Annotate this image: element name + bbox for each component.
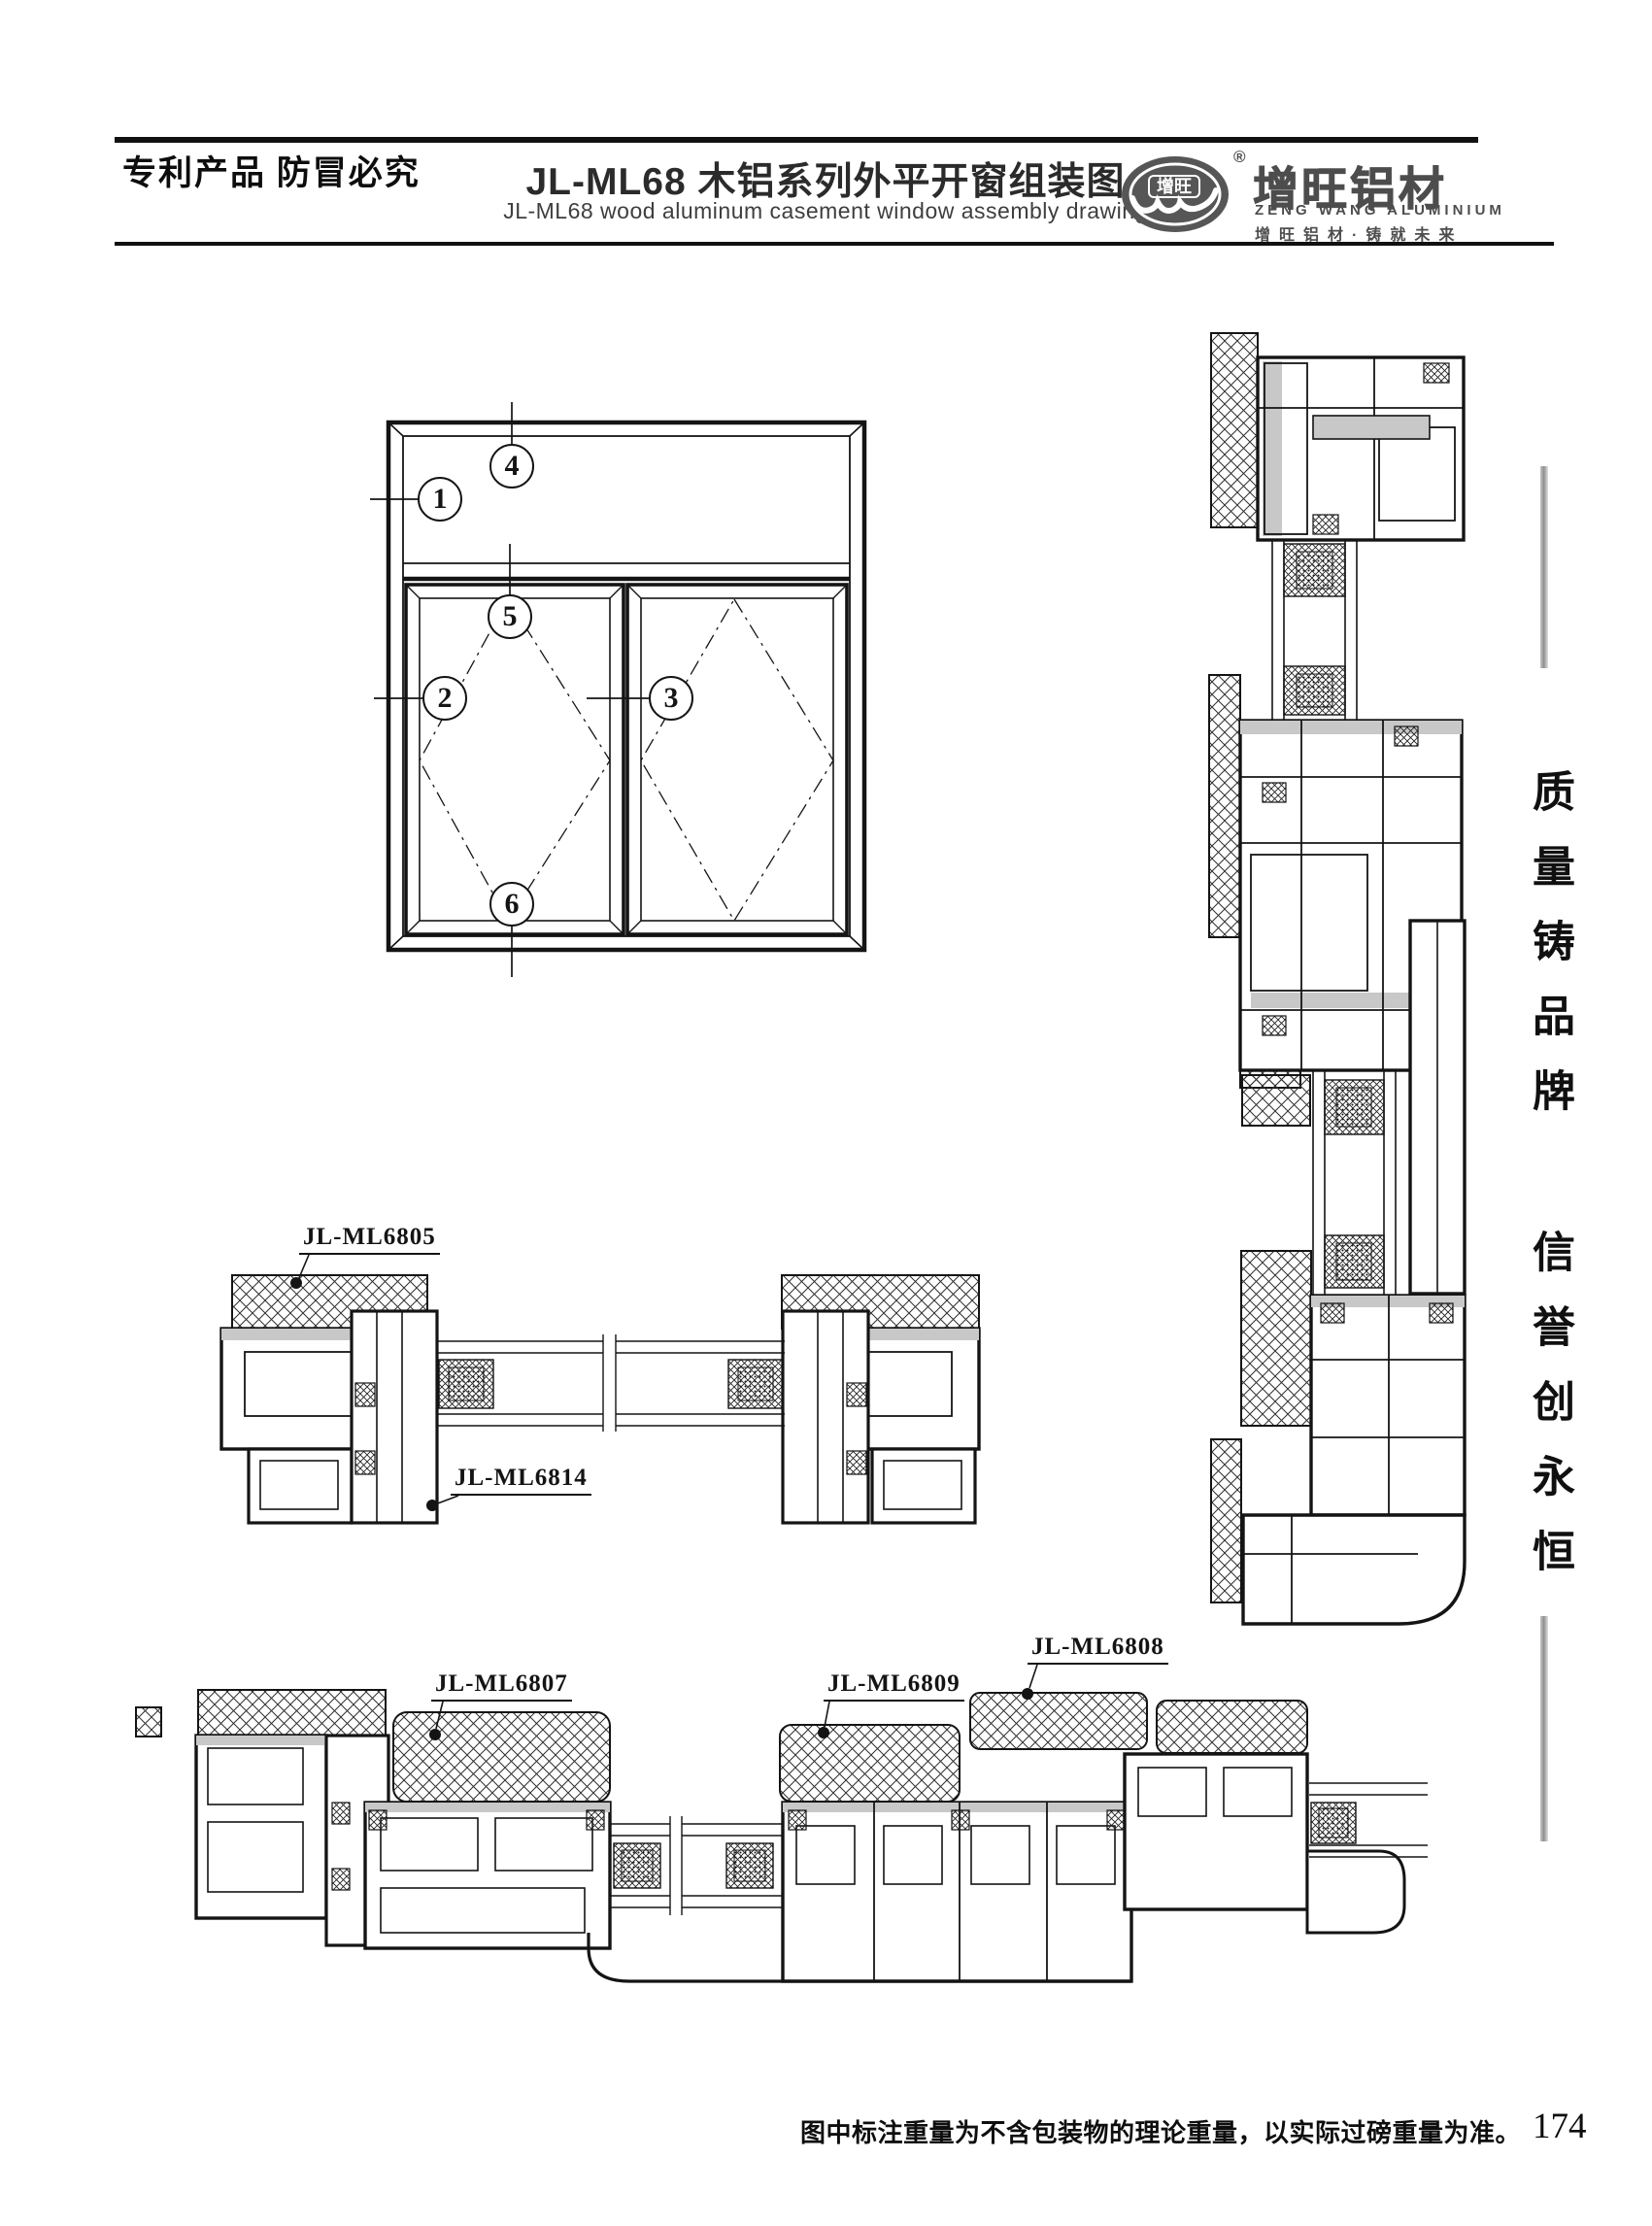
label-jl-ml6808: JL-ML6808 (1028, 1634, 1168, 1665)
sidebar-slogan-top: 质量铸品牌 (1518, 769, 1580, 1143)
callout-3: 3 (649, 676, 693, 721)
footer-note: 图中标注重量为不含包装物的理论重量，以实际过磅重量为准。 (647, 2113, 1521, 2149)
sidebar-divider-top (1540, 466, 1548, 668)
horizontal-section-bottom (136, 1665, 1428, 1981)
label-jl-ml6805: JL-ML6805 (299, 1224, 440, 1255)
page-number: 174 (1533, 2106, 1587, 2147)
label-jl-ml6814: JL-ML6814 (451, 1465, 591, 1496)
vertical-section-view (1209, 333, 1465, 1624)
callout-2-number: 2 (438, 682, 453, 715)
callout-5: 5 (488, 594, 532, 639)
callout-6-number: 6 (505, 888, 520, 921)
callout-6: 6 (489, 882, 534, 927)
horizontal-section-middle (221, 1255, 979, 1523)
callout-1-number: 1 (433, 483, 448, 516)
callout-3-number: 3 (664, 682, 679, 715)
assembly-drawing-canvas (0, 0, 1652, 2226)
callout-2: 2 (422, 676, 467, 721)
catalog-page: 专利产品 防冒必究 JL-ML68 木铝系列外平开窗组装图 JL-ML68 wo… (0, 0, 1652, 2226)
label-jl-ml6807: JL-ML6807 (431, 1670, 572, 1702)
callout-1: 1 (418, 477, 462, 522)
callout-4: 4 (489, 444, 534, 489)
sidebar-divider-bottom (1540, 1616, 1548, 1841)
label-jl-ml6809: JL-ML6809 (824, 1670, 964, 1702)
sidebar-slogan-bottom: 信誉创永恒 (1518, 1230, 1580, 1603)
callout-4-number: 4 (505, 450, 520, 483)
callout-5-number: 5 (503, 600, 518, 633)
